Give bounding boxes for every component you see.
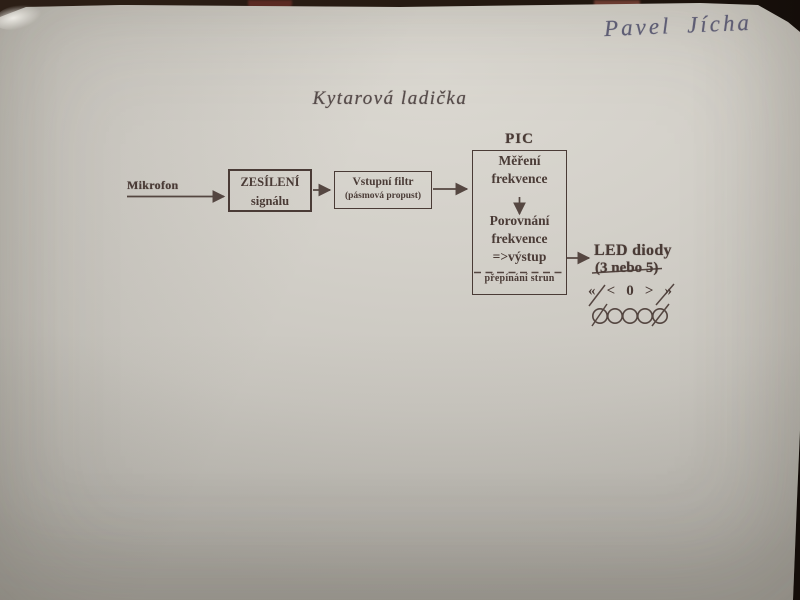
measure-line1: Měření	[473, 152, 566, 170]
crossout-right-circle	[652, 304, 669, 326]
compare-line2: frekvence	[473, 230, 566, 248]
led-symbol-right: >	[645, 283, 654, 300]
pic-measure-block: Měření frekvence	[473, 152, 566, 188]
amplifier-box-line1: ZESÍLENÍ	[230, 173, 310, 192]
amplifier-box-line2: signálu	[230, 192, 310, 211]
led-circle-4	[638, 309, 652, 323]
led-circle-1	[593, 309, 607, 323]
led-symbol-left: <	[607, 283, 616, 300]
led-circle-5	[653, 309, 667, 323]
led-count-label: (3 nebo 5)	[595, 260, 658, 277]
compare-line1: Porovnání	[473, 212, 566, 230]
compare-line3: =>výstup	[473, 248, 566, 266]
led-diodes-label: LED diody	[594, 242, 672, 260]
input-filter-box: Vstupní filtr (pásmová propust)	[334, 171, 432, 209]
pic-box: Měření frekvence Porovnání frekvence =>v…	[472, 150, 567, 295]
pic-chip-label: PIC	[472, 131, 567, 148]
led-symbol-center: 0	[626, 283, 634, 300]
led-circle-2	[608, 309, 622, 323]
measure-line2: frekvence	[473, 170, 566, 188]
pic-compare-block: Porovnání frekvence =>výstup	[473, 212, 566, 265]
page-title: Kytarová ladička	[275, 88, 505, 110]
microphone-label: Mikrofon	[127, 178, 179, 193]
block-diagram: Kytarová ladička Mikrofon ZESÍLENÍ signá…	[0, 0, 800, 600]
crossout-left-circle	[592, 304, 607, 326]
filter-box-line2: (pásmová propust)	[335, 190, 431, 203]
led-indicator-symbols: « < 0 > »	[588, 283, 672, 300]
led-symbol-far-left: «	[588, 283, 596, 300]
led-symbol-far-right: »	[665, 283, 673, 300]
led-circle-3	[623, 309, 637, 323]
filter-box-line1: Vstupní filtr	[335, 174, 431, 190]
amplifier-box: ZESÍLENÍ signálu	[228, 169, 312, 212]
string-switching-label: přepínání strun	[473, 273, 566, 284]
